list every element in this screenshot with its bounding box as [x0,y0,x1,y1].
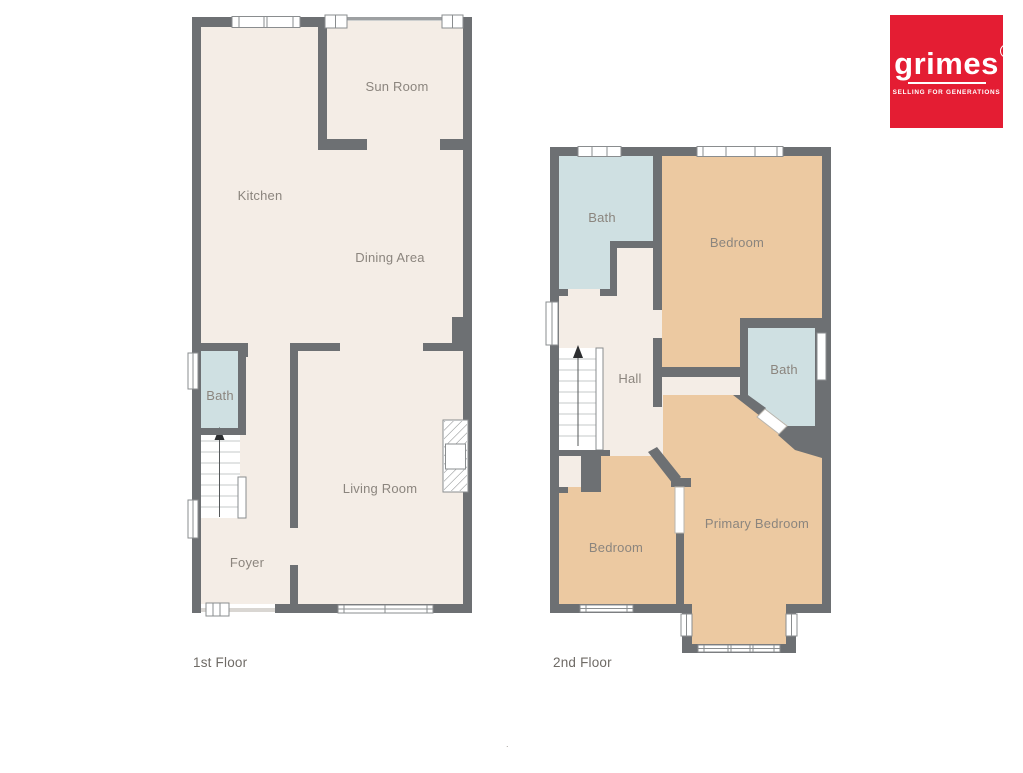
room-label-bath-1f: Bath [206,388,234,403]
room-label-bedroom-top: Bedroom [710,235,764,250]
logo-wordmark: grimes [894,46,999,81]
caption-second-floor: 2nd Floor [553,655,612,670]
floor-captions: 1st Floor 2nd Floor [193,655,612,670]
room-label-living-room: Living Room [343,481,417,496]
room-label-hall: Hall [618,371,641,386]
logo-wordmark-row: grimes 9 [894,48,999,79]
logo-tagline: SELLING FOR GENERATIONS [893,89,1001,96]
room-label-bath-2f-right: Bath [770,362,798,377]
caption-first-floor: 1st Floor [193,655,248,670]
staircase-second-floor [559,345,603,450]
room-label-bath-2f-left: Bath [588,210,616,225]
room-label-foyer: Foyer [230,555,265,570]
fireplace [443,420,468,492]
stray-mark: . [506,742,510,746]
room-label-bedroom-bottom: Bedroom [589,540,643,555]
agency-logo: grimes 9 SELLING FOR GENERATIONS [890,15,1003,128]
room-label-dining-area: Dining Area [355,250,425,265]
floor-plan-canvas: Sun Room Kitchen Dining Area Bath Living… [0,0,1023,768]
logo-underline [908,82,986,84]
room-label-kitchen: Kitchen [238,188,283,203]
room-label-primary-bedroom: Primary Bedroom [705,516,809,531]
logo-badge-icon: 9 [1000,44,1014,58]
staircase-first-floor [201,427,246,518]
room-label-sun-room: Sun Room [365,79,428,94]
